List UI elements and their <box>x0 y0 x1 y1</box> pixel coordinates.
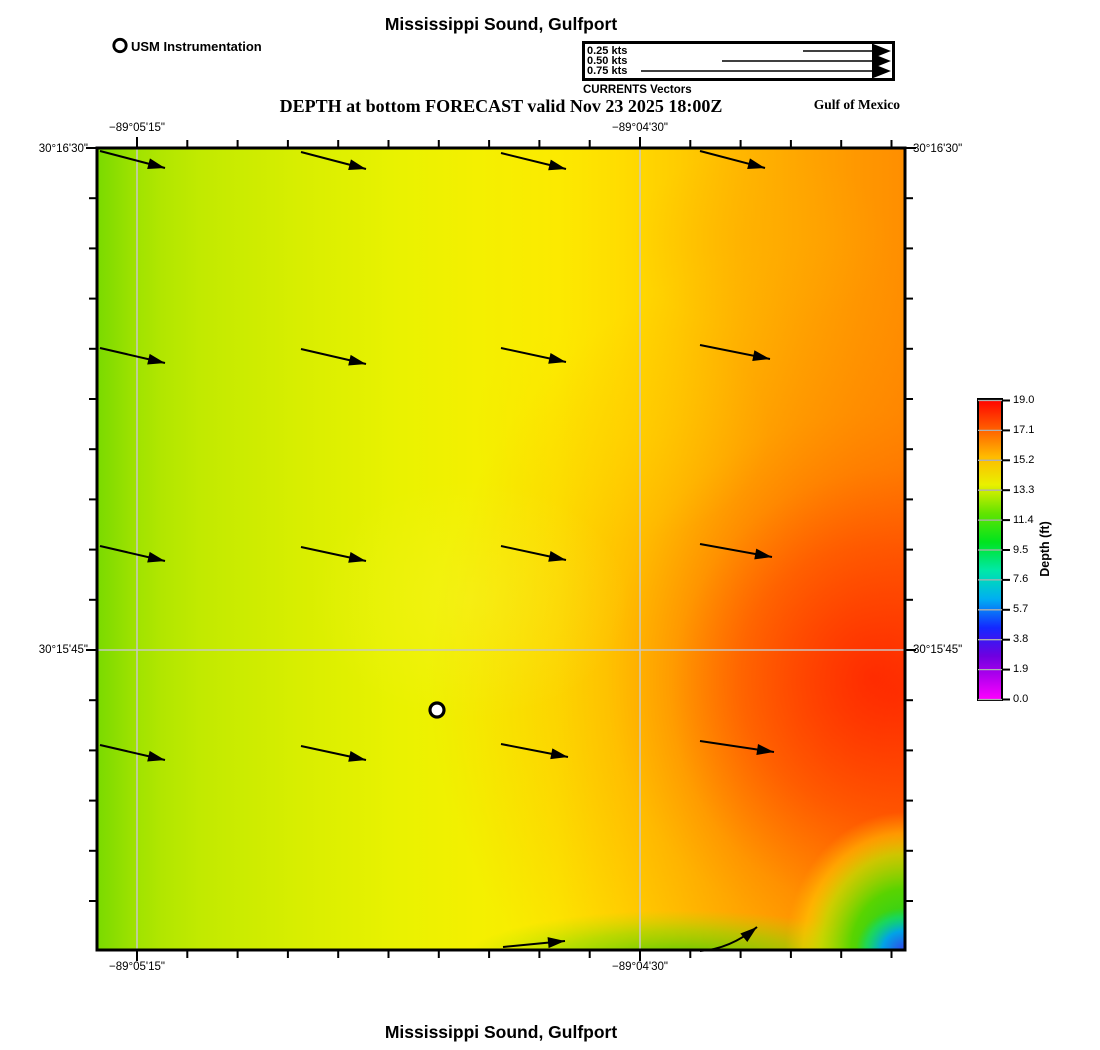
colorbar-tick-15.2: 15.2 <box>1013 454 1057 466</box>
region-label: Gulf of Mexico <box>750 97 900 113</box>
usm-legend-marker-icon <box>114 39 126 51</box>
y-axis-label-left-north: 30°16'30" <box>14 143 88 155</box>
x-axis-label-top-west: −89°05'15" <box>72 122 202 134</box>
forecast-page: { "header": { "title": "Mississippi Soun… <box>0 0 1100 1050</box>
colorbar-tick-3.8: 3.8 <box>1013 633 1057 645</box>
vector-legend-entry-075: 0.75 kts <box>587 66 627 76</box>
colorbar-tick-11.4: 11.4 <box>1013 514 1057 526</box>
y-axis-label-right-north: 30°16'30" <box>913 143 1003 155</box>
x-axis-label-bottom-east: −89°04'30" <box>575 961 705 973</box>
x-axis-label-bottom-west: −89°05'15" <box>72 961 202 973</box>
colorbar-tick-7.6: 7.6 <box>1013 573 1057 585</box>
colorbar-tick-17.1: 17.1 <box>1013 424 1057 436</box>
vector-legend-caption: CURRENTS Vectors <box>583 84 692 96</box>
vector-legend-box <box>582 41 895 81</box>
colorbar-tick-9.5: 9.5 <box>1013 544 1057 556</box>
colorbar-tick-19.0: 19.0 <box>1013 394 1057 406</box>
x-axis-label-top-east: −89°04'30" <box>575 122 705 134</box>
colorbar-tick-0.0: 0.0 <box>1013 693 1057 705</box>
forecast-plot-canvas <box>0 0 1100 1050</box>
colorbar-tick-13.3: 13.3 <box>1013 484 1057 496</box>
y-axis-label-right-south: 30°15'45" <box>913 644 1003 656</box>
page-title: Mississippi Sound, Gulfport <box>97 14 905 35</box>
instrument-legend-label: USM Instrumentation <box>131 39 262 54</box>
colorbar-tick-1.9: 1.9 <box>1013 663 1057 675</box>
colorbar-tick-5.7: 5.7 <box>1013 603 1057 615</box>
depth-heatmap <box>97 148 1025 1050</box>
usm-station-marker <box>430 703 444 717</box>
y-axis-label-left-south: 30°15'45" <box>14 644 88 656</box>
footer-title: Mississippi Sound, Gulfport <box>97 1022 905 1043</box>
